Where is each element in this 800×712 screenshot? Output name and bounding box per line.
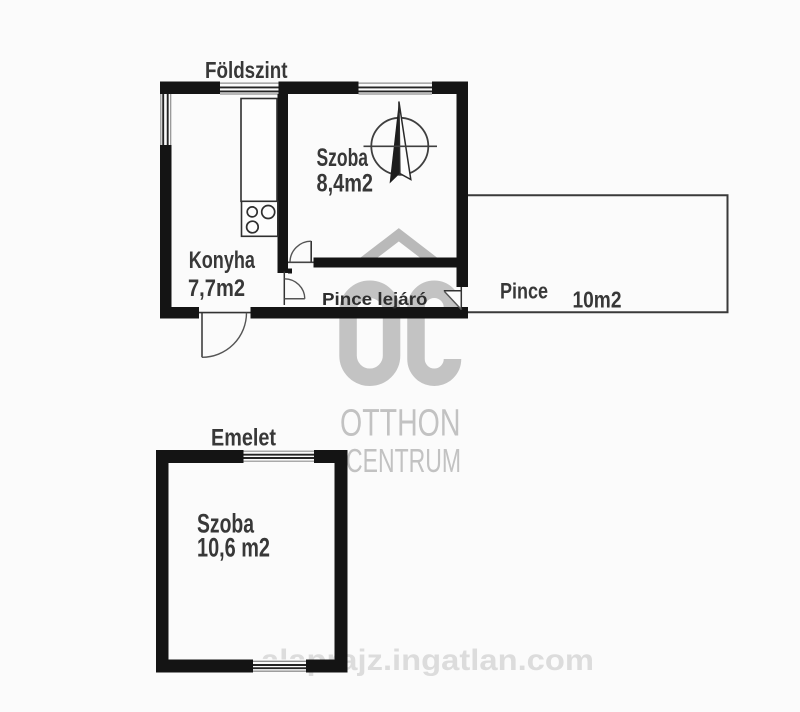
svg-text:7,7m2: 7,7m2 — [188, 275, 245, 302]
svg-text:OTTHON: OTTHON — [340, 403, 461, 445]
svg-text:8,4m2: 8,4m2 — [317, 169, 374, 197]
svg-text:Konyha: Konyha — [189, 247, 256, 274]
svg-text:CENTRUM: CENTRUM — [346, 443, 461, 480]
svg-text:10m2: 10m2 — [573, 287, 622, 313]
svg-text:Emelet: Emelet — [211, 424, 276, 451]
svg-text:Pince: Pince — [500, 278, 548, 303]
svg-text:Földszint: Földszint — [205, 57, 288, 83]
svg-text:Pince lejáró: Pince lejáró — [322, 289, 428, 309]
svg-text:10,6 m2: 10,6 m2 — [197, 532, 270, 562]
svg-text:Szoba: Szoba — [317, 144, 369, 172]
